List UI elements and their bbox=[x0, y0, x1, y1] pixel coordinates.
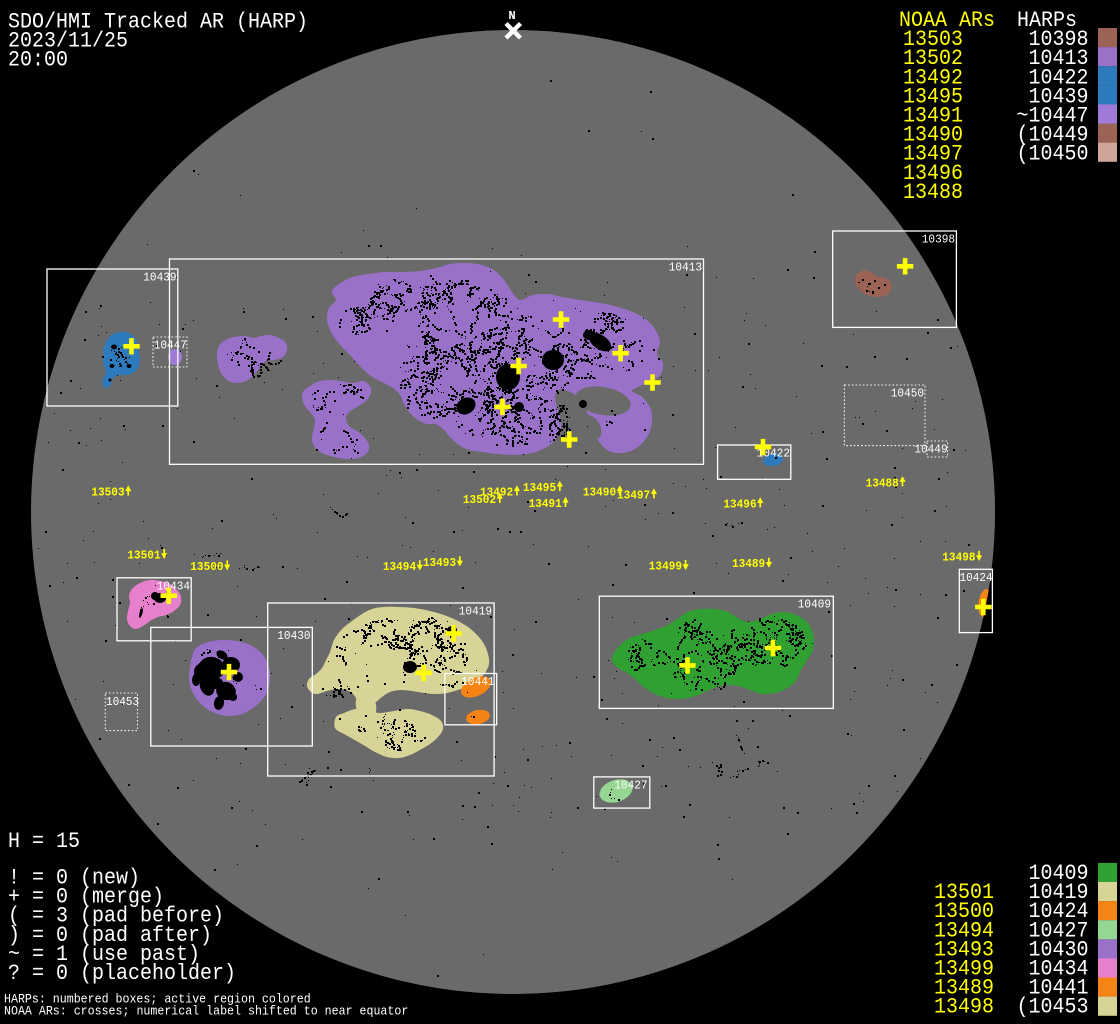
svg-text:13495: 13495 bbox=[523, 481, 556, 495]
svg-text:20:00: 20:00 bbox=[8, 48, 68, 73]
svg-text:10439: 10439 bbox=[143, 271, 176, 285]
svg-text:10430: 10430 bbox=[277, 629, 310, 643]
svg-text:N: N bbox=[508, 9, 515, 23]
svg-text:(10453: (10453 bbox=[1017, 995, 1089, 1020]
svg-text:13492: 13492 bbox=[480, 486, 513, 500]
svg-text:13498: 13498 bbox=[942, 550, 975, 564]
svg-text:10434: 10434 bbox=[157, 579, 190, 593]
svg-text:10419: 10419 bbox=[459, 605, 492, 619]
svg-text:10409: 10409 bbox=[798, 598, 831, 612]
svg-text:10398: 10398 bbox=[922, 233, 955, 247]
svg-text:10453: 10453 bbox=[106, 695, 139, 709]
svg-text:? = 0 (placeholder): ? = 0 (placeholder) bbox=[8, 961, 236, 986]
svg-text:NOAA ARs: crosses; numerical l: NOAA ARs: crosses; numerical label shift… bbox=[4, 1004, 408, 1019]
svg-text:(10450: (10450 bbox=[1017, 142, 1089, 167]
svg-text:10447: 10447 bbox=[154, 338, 187, 352]
svg-text:13499: 13499 bbox=[649, 560, 682, 574]
svg-text:13500: 13500 bbox=[190, 560, 223, 574]
svg-text:13497: 13497 bbox=[617, 488, 650, 502]
svg-text:10427: 10427 bbox=[614, 778, 647, 792]
svg-text:13501: 13501 bbox=[127, 548, 160, 562]
svg-text:13488: 13488 bbox=[903, 180, 963, 205]
svg-text:H = 15: H = 15 bbox=[8, 829, 80, 854]
svg-text:10413: 10413 bbox=[669, 260, 702, 274]
svg-text:13488: 13488 bbox=[866, 476, 899, 490]
svg-text:13503: 13503 bbox=[91, 486, 124, 500]
svg-text:10450: 10450 bbox=[891, 387, 924, 401]
svg-text:13491: 13491 bbox=[529, 497, 562, 511]
svg-text:13490: 13490 bbox=[583, 486, 616, 500]
svg-text:13493: 13493 bbox=[423, 556, 456, 570]
svg-text:13489: 13489 bbox=[732, 557, 765, 571]
svg-text:13496: 13496 bbox=[723, 497, 756, 511]
svg-text:10449: 10449 bbox=[914, 443, 947, 457]
svg-text:10441: 10441 bbox=[461, 675, 494, 689]
svg-text:10424: 10424 bbox=[960, 571, 993, 585]
svg-text:13498: 13498 bbox=[934, 995, 994, 1020]
svg-text:13494: 13494 bbox=[383, 560, 416, 574]
